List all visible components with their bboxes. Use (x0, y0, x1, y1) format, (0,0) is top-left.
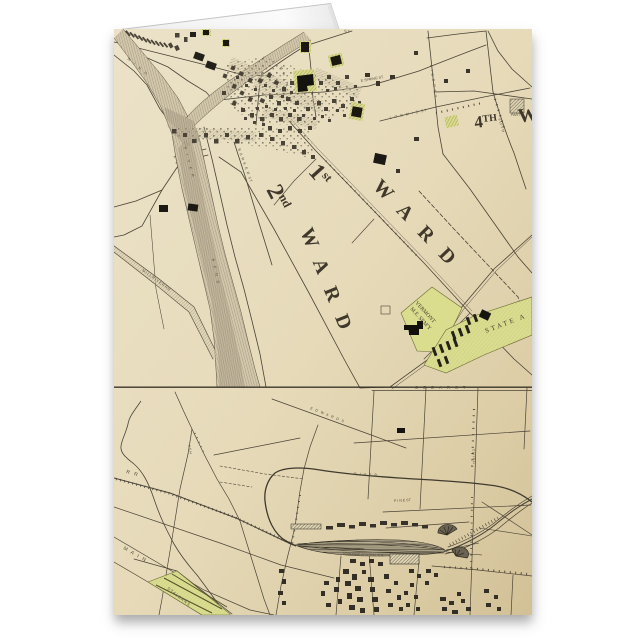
svg-text:C E D A R S T: C E D A R S T (415, 385, 467, 390)
svg-text:PART: PART (511, 113, 521, 117)
